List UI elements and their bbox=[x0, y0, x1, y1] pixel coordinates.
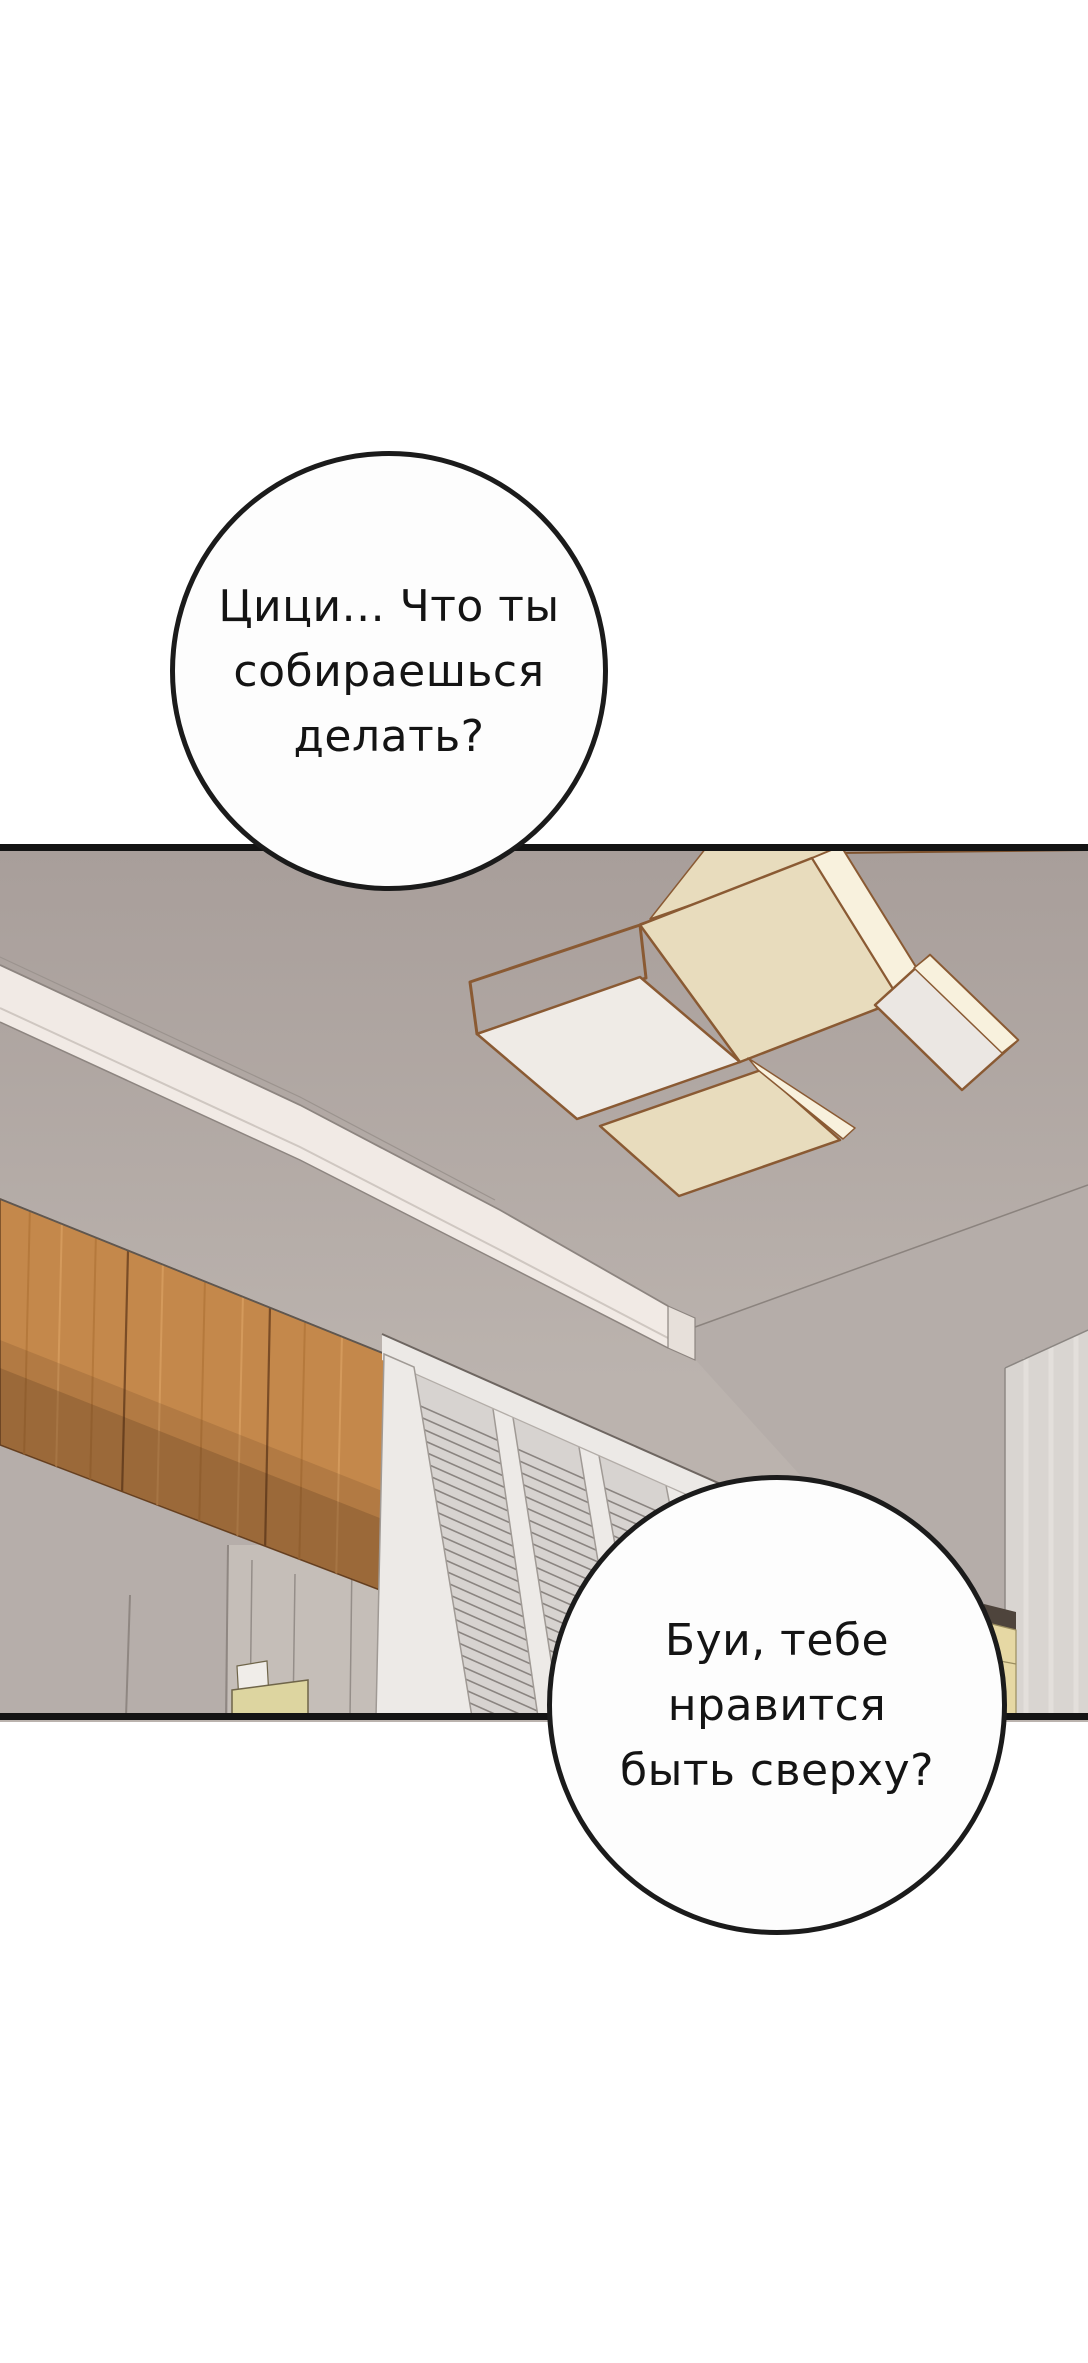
panel-border-top bbox=[0, 844, 1088, 851]
comic-page: Цици... Что ты собираешься делать? Буи, … bbox=[0, 0, 1088, 2363]
right-tall-panel bbox=[1005, 1330, 1088, 1717]
bubble-text-line: быть сверху? bbox=[620, 1738, 934, 1803]
bubble-text-line: нравится bbox=[668, 1673, 886, 1738]
bubble-text-line: собираешься bbox=[233, 639, 544, 704]
bubble-text-line: Цици... Что ты bbox=[218, 574, 559, 639]
bubble-text-line: Буи, тебе bbox=[665, 1608, 889, 1673]
bubble-text-line: делать? bbox=[294, 704, 485, 769]
speech-bubble-top: Цици... Что ты собираешься делать? bbox=[170, 451, 608, 891]
speech-bubble-bottom: Буи, тебе нравится быть сверху? bbox=[547, 1475, 1007, 1935]
